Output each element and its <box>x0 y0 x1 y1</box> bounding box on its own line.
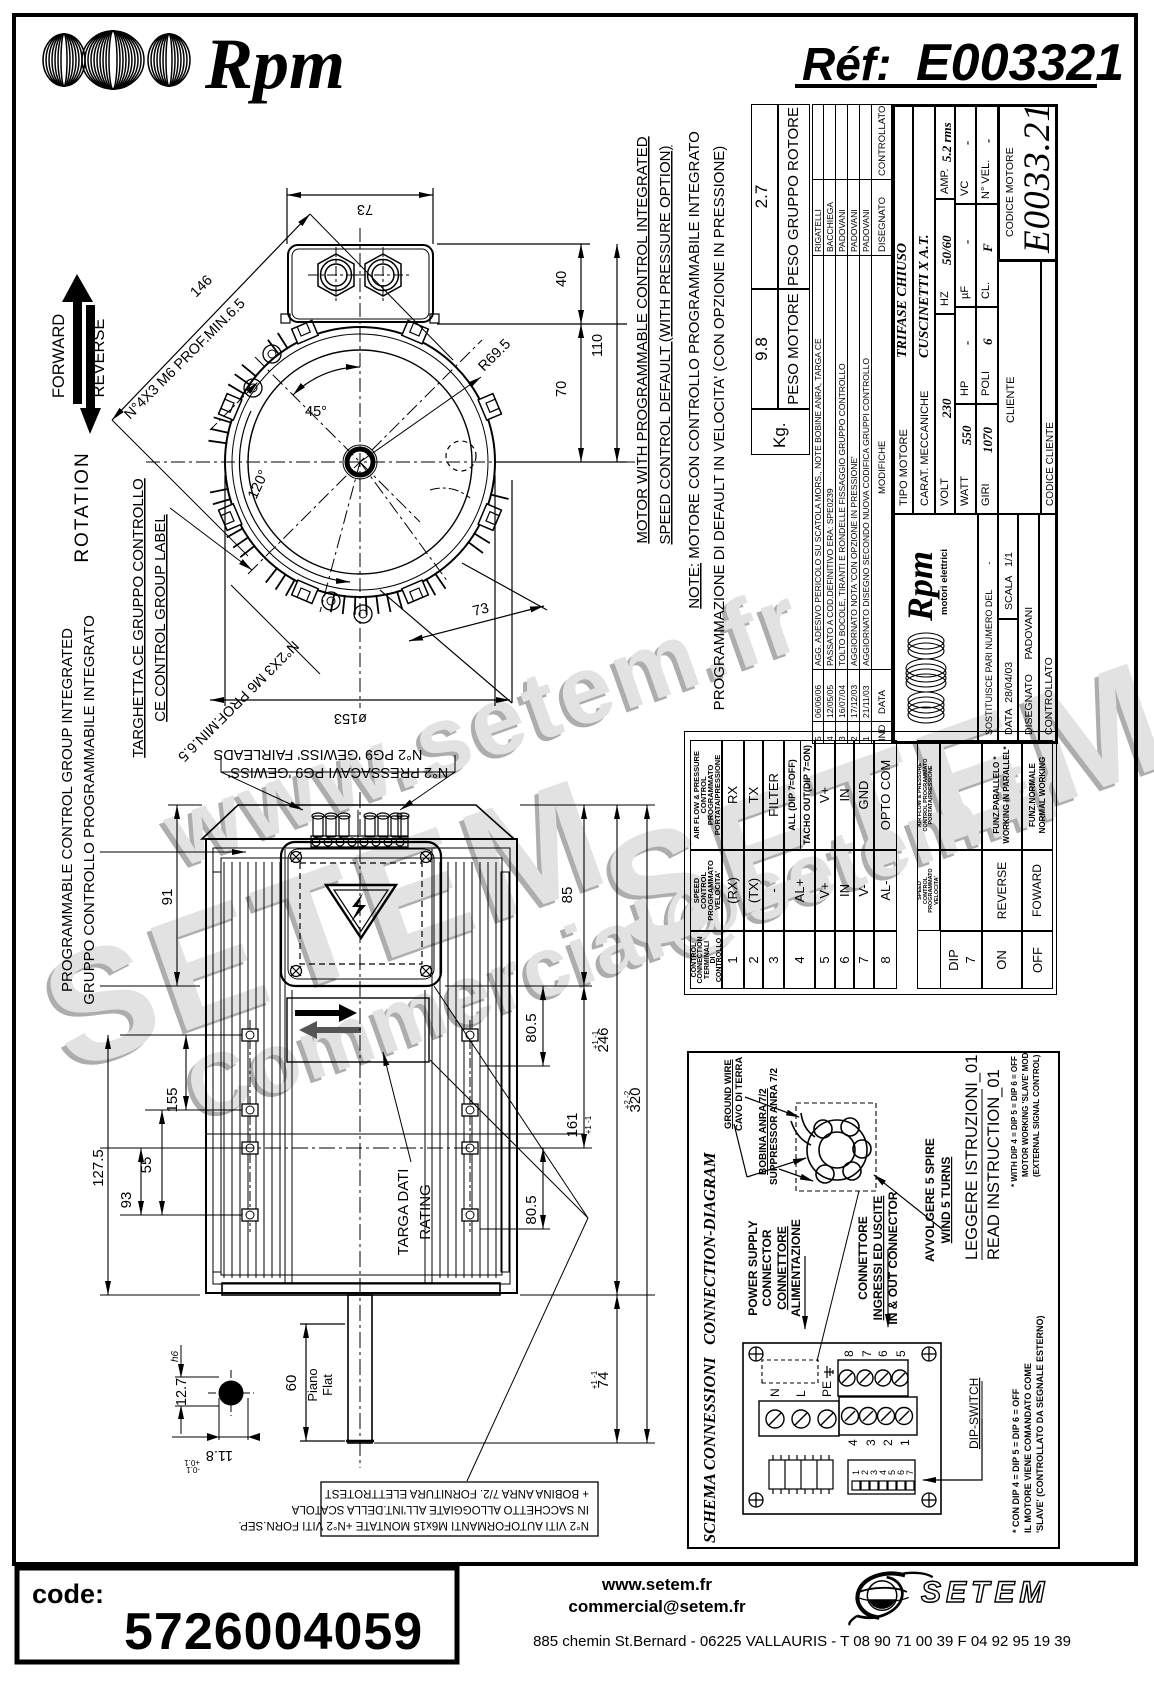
svg-text:MOTOR WORKING 'SLAVE' MODE: MOTOR WORKING 'SLAVE' MODE <box>1021 1051 1030 1177</box>
svg-text:SCHEMA CONNESSIONI CONNECTIO: SCHEMA CONNESSIONI CONNECTION-DIAGRAM <box>700 1151 719 1543</box>
svg-text:Piano: Piano <box>305 1368 320 1401</box>
svg-text:ROTATION: ROTATION <box>72 451 93 562</box>
svg-text:R69.5: R69.5 <box>476 336 515 375</box>
svg-text:FORWARD: FORWARD <box>50 314 68 398</box>
svg-text:2: 2 <box>881 1439 895 1446</box>
svg-text:73: 73 <box>471 600 491 619</box>
svg-text:ALIMENTAZIONE: ALIMENTAZIONE <box>789 1219 803 1317</box>
svg-text:Rpm: Rpm <box>204 24 345 104</box>
svg-text:'SLAVE' (CONTROLLATO DA SEGNAL: 'SLAVE' (CONTROLLATO DA SEGNALE ESTERNO) <box>1035 1316 1045 1533</box>
svg-text:code:: code: <box>32 1579 104 1609</box>
svg-text:N°2 VITI AUTOFORMANTI M6x15 MO: N°2 VITI AUTOFORMANTI M6x15 MONTATE +N°2… <box>238 1519 589 1531</box>
svg-text:www.setem.fr: www.setem.fr <box>601 1575 712 1594</box>
svg-text:+1 -1: +1 -1 <box>584 1115 593 1134</box>
svg-text:POWER SUPPLY: POWER SUPPLY <box>746 1220 760 1316</box>
svg-text:7: 7 <box>905 1470 915 1475</box>
svg-text:RATING: RATING <box>417 1184 434 1240</box>
svg-text:70: 70 <box>554 381 570 397</box>
svg-text:IN SACCHETTO ALLOGGIATE ALL'IN: IN SACCHETTO ALLOGGIATE ALL'INT.DELLA SC… <box>291 1503 589 1515</box>
svg-text:N: N <box>768 1388 782 1397</box>
svg-text:+1 -1: +1 -1 <box>590 1370 599 1389</box>
svg-text:110: 110 <box>590 334 606 357</box>
svg-text:Réf:: Réf: <box>802 38 891 90</box>
svg-text:85: 85 <box>559 887 576 904</box>
svg-text:155: 155 <box>164 1087 181 1112</box>
svg-text:93: 93 <box>118 1192 135 1209</box>
svg-text:80.5: 80.5 <box>523 1195 540 1224</box>
svg-text:885 chemin St.Bernard - 0622: 885 chemin St.Bernard - 06225 VALLAURIS … <box>533 1633 1071 1650</box>
svg-text:SETEM: SETEM <box>921 1576 1049 1609</box>
svg-text:SPEED CONTROL DEFAULT (WITH PR: SPEED CONTROL DEFAULT (WITH PRESSURE OPT… <box>657 146 674 545</box>
svg-text:40: 40 <box>554 271 570 287</box>
svg-text:READ INSTRUCTION_01: READ INSTRUCTION_01 <box>985 1069 1003 1260</box>
svg-text:91: 91 <box>159 889 176 906</box>
svg-text:MOTOR WITH PROGRAMMABLE CONTRO: MOTOR WITH PROGRAMMABLE CONTROL INTEGRAT… <box>634 136 651 543</box>
svg-text:12.7: 12.7 <box>174 1378 190 1406</box>
svg-text:60: 60 <box>283 1375 300 1392</box>
svg-text:55: 55 <box>138 1157 155 1174</box>
svg-text:WIND 5 TURNS: WIND 5 TURNS <box>939 1157 953 1244</box>
svg-text:-0.1: -0.1 <box>186 1465 200 1474</box>
svg-text:IL MOTORE VIENE COMANDATO COME: IL MOTORE VIENE COMANDATO COME <box>1023 1363 1033 1533</box>
svg-text:LEGGERE ISTRUZIONI_01: LEGGERE ISTRUZIONI_01 <box>963 1055 981 1260</box>
svg-text:GROUND WIRE: GROUND WIRE <box>723 1059 734 1129</box>
svg-text:h6: h6 <box>170 1350 181 1362</box>
svg-text:L: L <box>794 1390 808 1397</box>
svg-text:REVERSE: REVERSE <box>90 319 108 398</box>
svg-text:CONNETTORE: CONNETTORE <box>775 1226 789 1310</box>
svg-text:PROGRAMMAZIONE DI DEFAULT IN V: PROGRAMMAZIONE DI DEFAULT IN VELOCITA' (… <box>711 146 728 711</box>
svg-text:127.5: 127.5 <box>90 1149 107 1187</box>
svg-text:80.5: 80.5 <box>523 1013 540 1042</box>
svg-text:E003321: E003321 <box>916 34 1124 92</box>
svg-text:8: 8 <box>842 1350 856 1357</box>
svg-text:5726004059: 5726004059 <box>124 1603 423 1661</box>
svg-text:ø153: ø153 <box>334 710 367 726</box>
svg-text:73: 73 <box>357 201 373 217</box>
svg-text:N°2X3 M6 PROF.MIN.6.5: N°2X3 M6 PROF.MIN.6.5 <box>174 637 301 764</box>
svg-text:* CON DIP 4 = DIP 5 = DIP 6 =: * CON DIP 4 = DIP 5 = DIP 6 = OFF <box>1011 1388 1021 1533</box>
svg-text:CONNETTORE: CONNETTORE <box>856 1216 870 1300</box>
svg-text:DIP-SWITCH: DIP-SWITCH <box>967 1378 981 1449</box>
svg-text:+1 -1: +1 -1 <box>591 1030 600 1049</box>
svg-text:TARGA DATI: TARGA DATI <box>395 1169 412 1256</box>
svg-text:PE: PE <box>820 1381 834 1397</box>
svg-text:146: 146 <box>188 272 216 300</box>
svg-text:GRUPPO CONTROLLO PROGRAMMABILE: GRUPPO CONTROLLO PROGRAMMABILE INTEGRATO <box>81 615 98 1005</box>
svg-text:CONNECTOR: CONNECTOR <box>760 1229 774 1306</box>
svg-text:CE CONTROL GROUP LABEL: CE CONTROL GROUP LABEL <box>152 514 169 722</box>
svg-text:BOBINA ANRA 7/2: BOBINA ANRA 7/2 <box>758 1088 769 1175</box>
svg-text:INGRESSI ED USCITE: INGRESSI ED USCITE <box>871 1196 885 1321</box>
svg-text:commercial@setem.fr: commercial@setem.fr <box>568 1597 746 1616</box>
svg-text:4: 4 <box>846 1439 860 1446</box>
svg-text:11.8: 11.8 <box>206 1447 233 1463</box>
svg-text:NOTE: MOTORE CON CONTROLLO PRO: NOTE: MOTORE CON CONTROLLO PROGRAMMABILE… <box>686 131 703 609</box>
svg-text:161: 161 <box>564 1112 581 1137</box>
svg-text:N°2 PG9 'GEWISS' FAIRLEADS: N°2 PG9 'GEWISS' FAIRLEADS <box>214 746 423 762</box>
svg-text:PROGRAMMABLE CONTROL GROUP INT: PROGRAMMABLE CONTROL GROUP INTEGRATED <box>59 628 76 992</box>
svg-text:7: 7 <box>860 1350 874 1357</box>
svg-text:45°: 45° <box>305 404 327 420</box>
svg-text:5: 5 <box>894 1350 908 1357</box>
svg-text:CAVO DI TERRA: CAVO DI TERRA <box>734 1057 745 1131</box>
svg-text:Flat: Flat <box>320 1374 335 1396</box>
svg-text:AVVOLGERE 5 SPIRE: AVVOLGERE 5 SPIRE <box>923 1138 937 1262</box>
svg-text:(EXTERNAL SIGNAL CONTROL): (EXTERNAL SIGNAL CONTROL) <box>1032 1054 1041 1177</box>
svg-text:+2 -2: +2 -2 <box>623 1090 632 1109</box>
svg-text:3: 3 <box>864 1439 878 1446</box>
svg-text:1: 1 <box>898 1439 912 1446</box>
svg-text:6: 6 <box>876 1350 890 1357</box>
svg-text:TARGHETTA CE GRUPPO CONTROLLO: TARGHETTA CE GRUPPO CONTROLLO <box>130 478 147 757</box>
svg-text:+ BOBINA ANRA 7/2. FORNITURA E: + BOBINA ANRA 7/2. FORNITURA ELETTROTEST <box>325 1487 589 1499</box>
svg-text:* WITH DIP 4 = DIP 5 = DIP 6 =: * WITH DIP 4 = DIP 5 = DIP 6 = OFF <box>1010 1056 1019 1187</box>
